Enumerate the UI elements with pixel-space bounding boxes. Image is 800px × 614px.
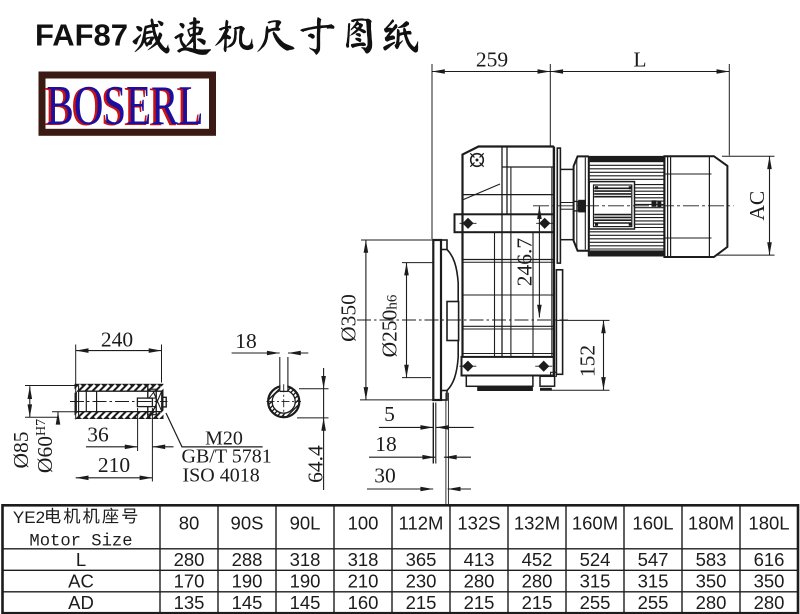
- svg-text:240: 240: [101, 327, 133, 351]
- svg-text:135: 135: [174, 592, 205, 613]
- svg-text:Ø350: Ø350: [337, 294, 361, 342]
- svg-text:L: L: [76, 549, 86, 570]
- svg-text:90L: 90L: [290, 513, 321, 534]
- svg-text:246.7: 246.7: [513, 238, 537, 287]
- svg-text:413: 413: [464, 549, 495, 570]
- svg-text:452: 452: [522, 549, 553, 570]
- svg-text:BOSERL: BOSERL: [47, 75, 204, 137]
- svg-text:280: 280: [696, 592, 727, 613]
- svg-text:230: 230: [406, 571, 437, 592]
- svg-text:145: 145: [232, 592, 263, 613]
- svg-text:583: 583: [696, 549, 727, 570]
- svg-text:280: 280: [174, 549, 205, 570]
- svg-text:145: 145: [290, 592, 321, 613]
- svg-text:30: 30: [374, 464, 396, 488]
- svg-text:288: 288: [232, 549, 263, 570]
- svg-text:315: 315: [638, 571, 669, 592]
- svg-text:180L: 180L: [748, 513, 789, 534]
- svg-text:160M: 160M: [572, 513, 618, 534]
- svg-text:AD: AD: [68, 592, 94, 613]
- svg-text:160L: 160L: [632, 513, 673, 534]
- svg-text:315: 315: [580, 571, 611, 592]
- svg-text:318: 318: [348, 549, 379, 570]
- svg-text:280: 280: [754, 592, 785, 613]
- svg-text:YE2: YE2: [13, 508, 45, 527]
- svg-text:80: 80: [179, 513, 200, 534]
- svg-text:365: 365: [406, 549, 437, 570]
- svg-text:90S: 90S: [231, 513, 264, 534]
- svg-text:350: 350: [754, 571, 785, 592]
- svg-text:AC: AC: [745, 191, 769, 221]
- svg-text:ISO 4018: ISO 4018: [183, 464, 260, 486]
- svg-text:132M: 132M: [514, 513, 560, 534]
- svg-text:318: 318: [290, 549, 321, 570]
- svg-text:36: 36: [87, 423, 109, 447]
- svg-text:547: 547: [638, 549, 669, 570]
- svg-text:350: 350: [696, 571, 727, 592]
- svg-text:190: 190: [290, 571, 321, 592]
- svg-text:160: 160: [348, 592, 379, 613]
- svg-text:180M: 180M: [688, 513, 734, 534]
- svg-text:152: 152: [576, 345, 600, 377]
- svg-text:215: 215: [522, 592, 553, 613]
- svg-text:18: 18: [375, 432, 397, 456]
- svg-text:616: 616: [754, 549, 785, 570]
- svg-text:210: 210: [98, 453, 130, 477]
- svg-text:Ø85: Ø85: [9, 431, 33, 468]
- svg-text:132S: 132S: [457, 513, 500, 534]
- svg-text:64.4: 64.4: [304, 445, 328, 483]
- svg-text:255: 255: [580, 592, 611, 613]
- svg-text:112M: 112M: [399, 513, 444, 534]
- svg-text:259: 259: [476, 48, 508, 72]
- svg-text:5: 5: [384, 402, 395, 426]
- svg-text:AC: AC: [68, 571, 94, 592]
- svg-text:170: 170: [174, 571, 205, 592]
- svg-text:100: 100: [348, 513, 379, 534]
- svg-text:18: 18: [235, 329, 257, 353]
- svg-text:215: 215: [464, 592, 495, 613]
- svg-text:524: 524: [580, 549, 611, 570]
- svg-text:210: 210: [348, 571, 379, 592]
- svg-text:L: L: [633, 48, 646, 72]
- svg-text:280: 280: [464, 571, 495, 592]
- svg-text:215: 215: [406, 592, 437, 613]
- svg-text:255: 255: [638, 592, 669, 613]
- svg-text:FAF87: FAF87: [35, 18, 128, 53]
- svg-text:280: 280: [522, 571, 553, 592]
- svg-text:190: 190: [232, 571, 263, 592]
